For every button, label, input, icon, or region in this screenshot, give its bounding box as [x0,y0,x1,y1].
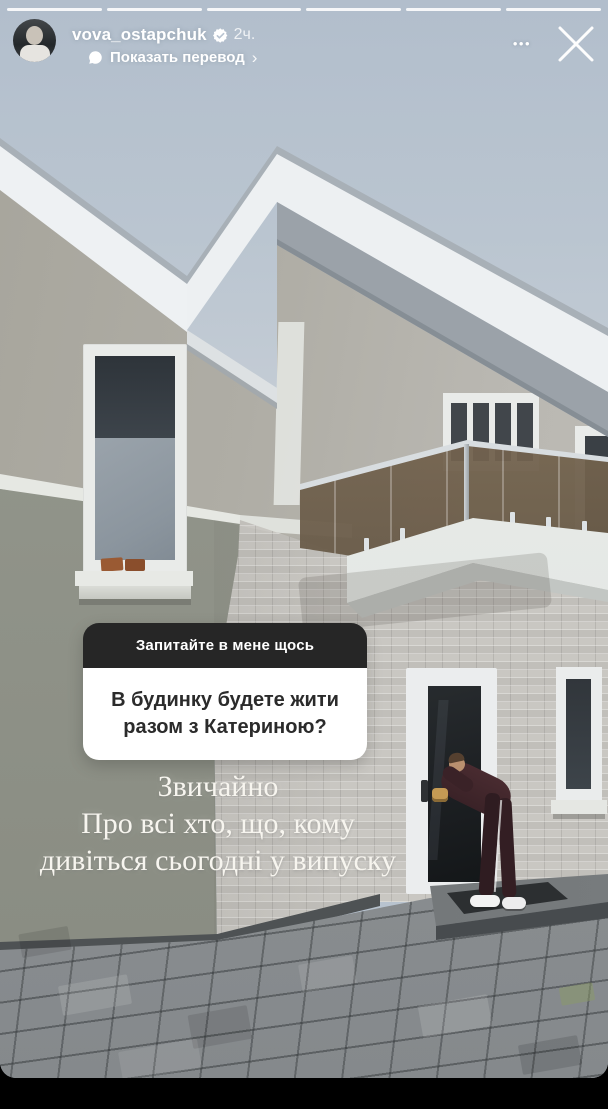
caption-line: дивіться сьогодні у випуску [0,842,436,879]
lower-window-sill [551,800,607,814]
timestamp: 2ч. [234,26,256,44]
brick-on-sill [101,557,124,572]
railing-corner-post [464,444,469,524]
lower-window-sill-shadow [553,814,605,819]
username[interactable]: vova_ostapchuk [72,25,207,45]
verified-badge-icon [213,28,228,43]
avatar-photo [26,26,43,45]
translate-button[interactable]: Показать перевод › [88,49,257,66]
railing-clip [364,538,369,551]
progress-segment [107,8,202,11]
question-text: В будинку будете жити разом з Катериною? [105,687,345,741]
upper-window-sill [75,571,193,586]
avatar[interactable] [13,19,56,62]
upper-window-glass-reflection [95,438,175,560]
story-viewport[interactable]: vova_ostapchuk 2ч. Показать перевод › ••… [0,0,608,1078]
close-button[interactable] [557,25,595,63]
more-options-button[interactable]: ••• [513,36,531,51]
brick-on-sill [125,559,145,571]
caption-line: Звичайно [0,768,436,805]
story-photo[interactable] [0,0,608,1078]
question-sticker-title: Запитайте в мене щось [136,637,314,654]
man-shoe [502,897,526,909]
story-caption: Звичайно Про всі хто, що, кому дивіться … [0,768,436,879]
translate-label: Показать перевод [110,49,245,66]
progress-segment [7,8,102,11]
man-shoe [470,895,500,907]
house-corner-trim [274,322,305,505]
upper-window-sill-shadow [79,599,191,605]
story-progress-bar [7,8,601,11]
progress-segment [306,8,401,11]
progress-segment [406,8,501,11]
lower-window-glass [566,679,591,789]
upper-window-glass-dark [95,356,175,438]
question-sticker[interactable]: Запитайте в мене щось В будинку будете ж… [83,623,367,760]
upper-window-sill-ledge [79,586,191,599]
question-sticker-body: В будинку будете жити разом з Катериною? [83,668,367,760]
caption-line: Про всі хто, що, кому [0,805,436,842]
story-header-row: vova_ostapchuk 2ч. [72,25,255,45]
progress-segment [506,8,601,11]
speech-bubble-icon [88,50,103,65]
progress-segment [207,8,302,11]
chevron-right-icon: › [252,51,258,65]
story-page: { "colors": { "sticker_header_bg": "#262… [0,0,608,1109]
avatar-photo [20,45,50,62]
question-sticker-header: Запитайте в мене щось [83,623,367,668]
